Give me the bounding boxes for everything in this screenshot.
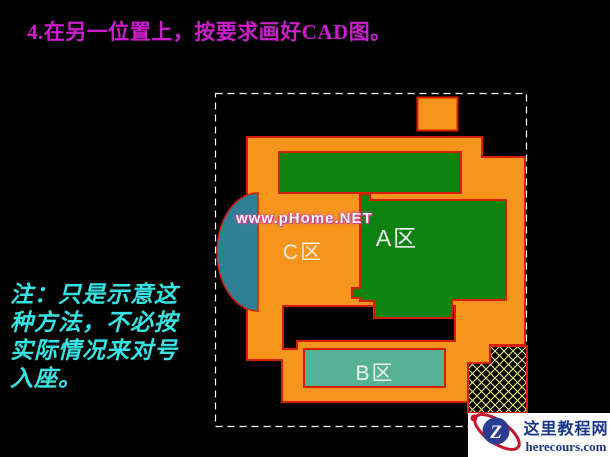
site-logo-text: 这里教程网 herecours.com bbox=[523, 415, 609, 455]
logo-swoosh-dot-icon bbox=[471, 415, 478, 422]
cad-region-a-shape bbox=[352, 194, 506, 318]
site-name: 这里教程网 bbox=[523, 415, 609, 439]
cad-chimney-block bbox=[418, 98, 458, 131]
logo-monogram-letter: Z bbox=[489, 422, 502, 443]
area-a-label: A区 bbox=[376, 225, 418, 251]
tutorial-slide: 4.在另一位置上，按要求画好CAD图。 注：只是示意这 种方法，不必按 实际情况… bbox=[0, 0, 610, 457]
cad-top-green-block bbox=[279, 152, 461, 193]
area-b-label: B区 bbox=[355, 362, 394, 385]
watermark-text: www.pHome.NET bbox=[236, 210, 373, 227]
area-c-label: C区 bbox=[283, 241, 323, 264]
cad-drawing: A区 C区 B区 bbox=[0, 0, 610, 457]
site-logo-mark: Z bbox=[468, 413, 528, 457]
site-url: herecours.com bbox=[523, 439, 609, 455]
site-logo: Z 这里教程网 herecours.com bbox=[468, 413, 610, 457]
